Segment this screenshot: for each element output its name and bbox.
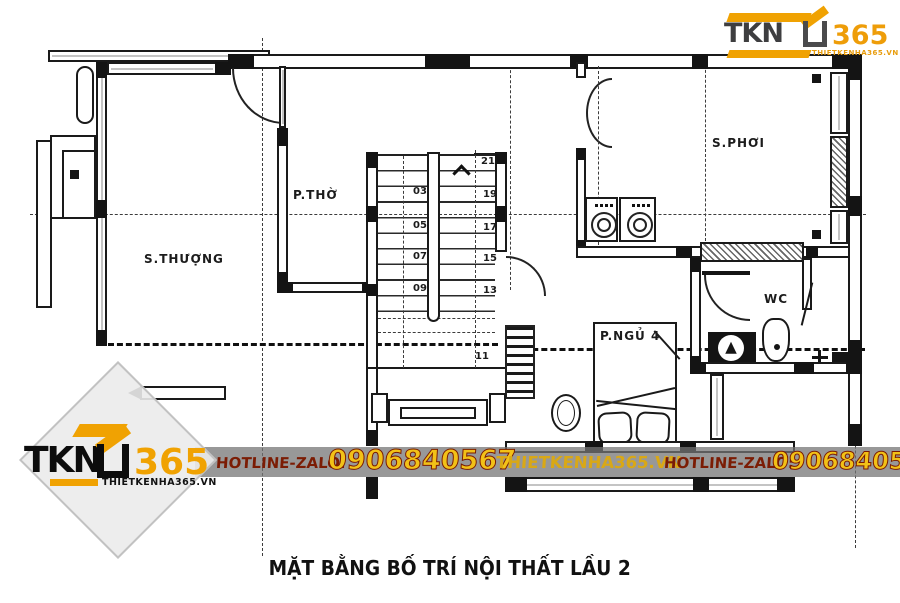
wall-pillar [692, 54, 708, 69]
vent-louver [505, 325, 535, 399]
room-label-s-thuong: S.THƯỢNG [144, 252, 224, 266]
window-divider [279, 66, 286, 128]
house-body [803, 21, 827, 47]
logo-bar-bottom [727, 50, 812, 58]
washer-control-dots [595, 204, 598, 207]
step-number: 07 [408, 251, 432, 262]
step-number: 11 [470, 351, 494, 362]
toilet [762, 318, 790, 362]
house-icon [92, 420, 134, 480]
shower-drain [718, 335, 744, 361]
planter-box-inner [62, 150, 96, 219]
step-number: 03 [408, 186, 432, 197]
logo-bar-bottom [50, 479, 98, 486]
logo-365-text: 365 [832, 20, 888, 51]
column-marker [812, 74, 821, 83]
washing-machine [585, 197, 618, 242]
wall-pillar [366, 477, 378, 499]
wall-pillar [425, 54, 470, 69]
wall-pillar [96, 200, 107, 218]
room-label-p-ngu4: P.NGỦ 4 [600, 329, 660, 343]
wall-pillar [846, 362, 862, 374]
house-icon [799, 3, 831, 49]
door-swing-arc [506, 256, 546, 296]
stair-spine-wall [427, 152, 440, 322]
wall-pillar [366, 206, 378, 222]
planter-rounded [76, 66, 94, 124]
wall-pillar [848, 424, 862, 446]
boundary-dashed-right [505, 348, 865, 351]
step-number: 09 [408, 283, 432, 294]
faucet-bar [812, 356, 828, 359]
wall-corridor-stub [576, 62, 586, 78]
door-swing-arc [704, 275, 750, 321]
logo-tkn-text: TKN [724, 18, 783, 49]
logo-domain-text: THIETKENHA365.VN [102, 477, 217, 488]
wall-pillar [777, 477, 795, 492]
room-label-p-tho: P.THỜ [293, 188, 338, 202]
washer-control-dots [632, 204, 635, 207]
room-label-wc: WC [764, 292, 788, 306]
wall-pillar [228, 54, 254, 69]
drawing-title: MẶT BẰNG BỐ TRÍ NỘI THẤT LẦU 2 [0, 556, 900, 580]
bench-inner [400, 407, 476, 419]
wall-pillar [277, 282, 293, 293]
washing-machine [619, 197, 656, 242]
wall-pillar [848, 196, 862, 216]
wall-pillar [848, 340, 862, 362]
wall-pillar [96, 62, 107, 78]
window-sphoi-bottom [830, 210, 848, 244]
hotline-phone: 0906840567 [771, 447, 900, 475]
step-number: 17 [478, 222, 502, 233]
stair-landing-edge [366, 367, 507, 369]
window-bottom-right [710, 374, 724, 440]
pillow [635, 411, 671, 445]
wall-pillar [676, 246, 692, 258]
step-number: 21 [476, 156, 500, 167]
step-number: 15 [478, 253, 502, 264]
wall-divider-ptho [277, 128, 288, 290]
toilet-flush-dot [774, 344, 780, 350]
website-text: THIETKENHA365.VN [495, 453, 682, 472]
step-number: 13 [478, 285, 502, 296]
shower-pan [708, 332, 756, 364]
boundary-dashed-left [108, 343, 498, 346]
pillow [597, 411, 633, 445]
stair-tread-dashed [378, 332, 495, 333]
stair-centerline-left [403, 156, 404, 368]
door-swing-arc [586, 113, 612, 148]
logo-tkn-text: TKN [24, 440, 101, 481]
wall-pillar [96, 330, 107, 346]
stair-wall-right [495, 152, 507, 252]
door-swing-arc [586, 78, 612, 113]
wall-pillar [690, 362, 706, 374]
house-body [97, 444, 129, 478]
stair-centerline-right [475, 150, 476, 368]
wall-right-exterior [848, 54, 862, 446]
hotline-watermark-band: HOTLINE-ZALO: 0906840567 THIETKENHA365.V… [195, 447, 900, 477]
shower-symbol [722, 339, 740, 357]
brand-logo-watermark: TKN 365 THIETKENHA365.VN [0, 410, 230, 520]
wall-pillar [505, 477, 527, 492]
hotline-phone: 0906840567 [327, 445, 517, 476]
wall-pillar [366, 152, 378, 168]
axis-line-vertical-stair [510, 55, 511, 290]
step-number: 19 [478, 189, 502, 200]
window-top-left [107, 62, 217, 75]
door-swing-arc [232, 68, 284, 124]
wall-pillar [277, 128, 288, 146]
wall-wc-bottom [690, 362, 862, 374]
wall-bottom-exterior [505, 477, 795, 492]
wall-pillar [366, 430, 378, 446]
basin-oval-inner [557, 400, 575, 426]
wall-pillar [576, 148, 586, 160]
column-marker [812, 230, 821, 239]
wall-pillar [690, 258, 701, 272]
wall-pillar [794, 362, 814, 374]
wall-pillar [70, 170, 79, 179]
wall-pillar [366, 284, 378, 296]
newel-post [489, 393, 506, 423]
newel-post [371, 393, 388, 423]
room-label-s-phoi: S.PHƠI [712, 136, 765, 150]
floor-plan-page: 03 05 07 09 21 19 17 15 13 11 [0, 0, 900, 603]
brand-logo-top-right: TKN 365 THIETKENHA365.VN [720, 0, 900, 60]
wall-pillar [495, 206, 507, 222]
logo-domain-text: THIETKENHA365.VN [812, 49, 899, 57]
wall-pillar [806, 246, 818, 258]
drying-counter-hatched [700, 242, 804, 262]
axis-line-vertical-sphoi [705, 60, 706, 246]
step-number-overline [474, 153, 500, 154]
step-number: 05 [408, 220, 432, 231]
wall-pillar [693, 477, 709, 492]
vent-shaft-hatched [830, 136, 848, 208]
window-sphoi-top [830, 72, 848, 134]
drawing-title-text: MẶT BẰNG BỐ TRÍ NỘI THẤT LẦU 2 [269, 556, 631, 580]
